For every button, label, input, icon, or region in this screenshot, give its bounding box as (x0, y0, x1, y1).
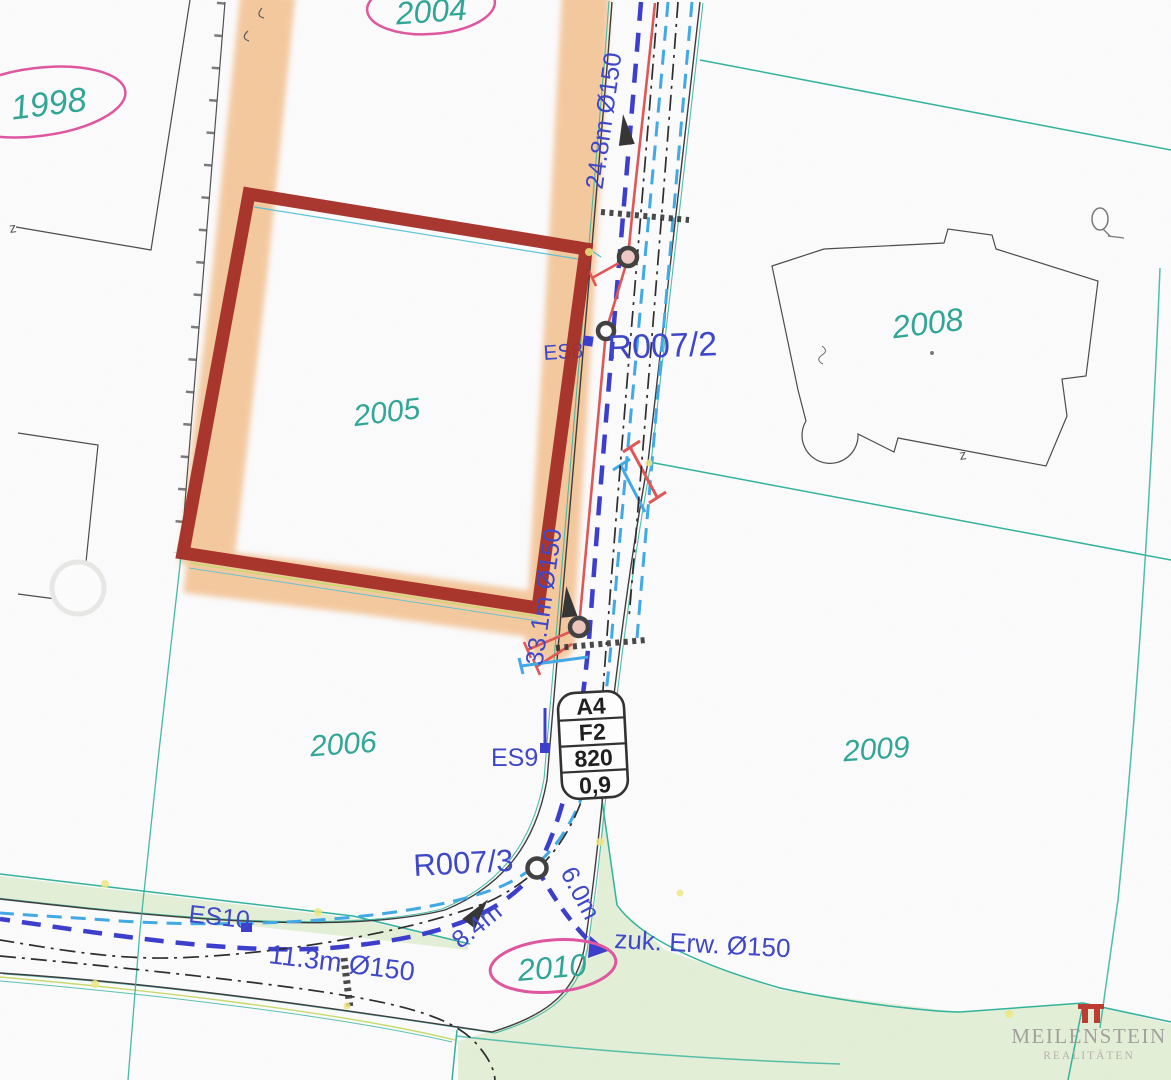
parcel-2009-label: 2009 (841, 731, 911, 769)
pipe-info-row-1: A4 (576, 692, 607, 720)
shaft-circle-r007-3 (528, 859, 547, 878)
yellow-dot (596, 838, 604, 846)
watermark-subtitle: REALITÄTEN (1043, 1048, 1135, 1062)
pipe-info-box: A4 F2 820 0,9 (557, 690, 628, 799)
yellow-dot (646, 460, 653, 467)
pipe-info-row-2: F2 (578, 718, 606, 745)
watermark-title: MEILENSTEIN (1011, 1024, 1166, 1048)
es9-label: ES9 (491, 744, 538, 772)
yellow-dot (314, 908, 322, 916)
building-left-round-blob (52, 562, 104, 614)
yellow-dot (344, 1003, 351, 1010)
r007-2-label: R007/2 (607, 325, 718, 367)
parcel-2010-label: 2010 (515, 947, 588, 988)
building-2008-center-dot (930, 351, 934, 355)
yellow-dot (1005, 1010, 1013, 1018)
parcel-2006-label: 2006 (308, 726, 378, 764)
pipe-info-row-4: 0,9 (578, 771, 611, 799)
cadastral-map-image: ES8 R007/2 R007/3 ES9 ES10 24.8m Ø150 33… (0, 0, 1171, 1080)
yellow-dot (101, 880, 109, 888)
shaft-circle-3 (570, 618, 588, 636)
es8-marker-square (582, 335, 593, 346)
yellow-dot (91, 980, 99, 988)
shaft-circle-1 (619, 248, 637, 266)
yellow-dot (585, 248, 593, 256)
es9-marker-square (540, 743, 550, 753)
parcel-2004-label: 2004 (393, 0, 468, 32)
r007-3-label: R007/3 (413, 843, 515, 883)
yellow-dot (677, 890, 684, 897)
pipe-info-row-3: 820 (574, 744, 614, 772)
map-canvas: ES8 R007/2 R007/3 ES9 ES10 24.8m Ø150 33… (0, 0, 1171, 1080)
